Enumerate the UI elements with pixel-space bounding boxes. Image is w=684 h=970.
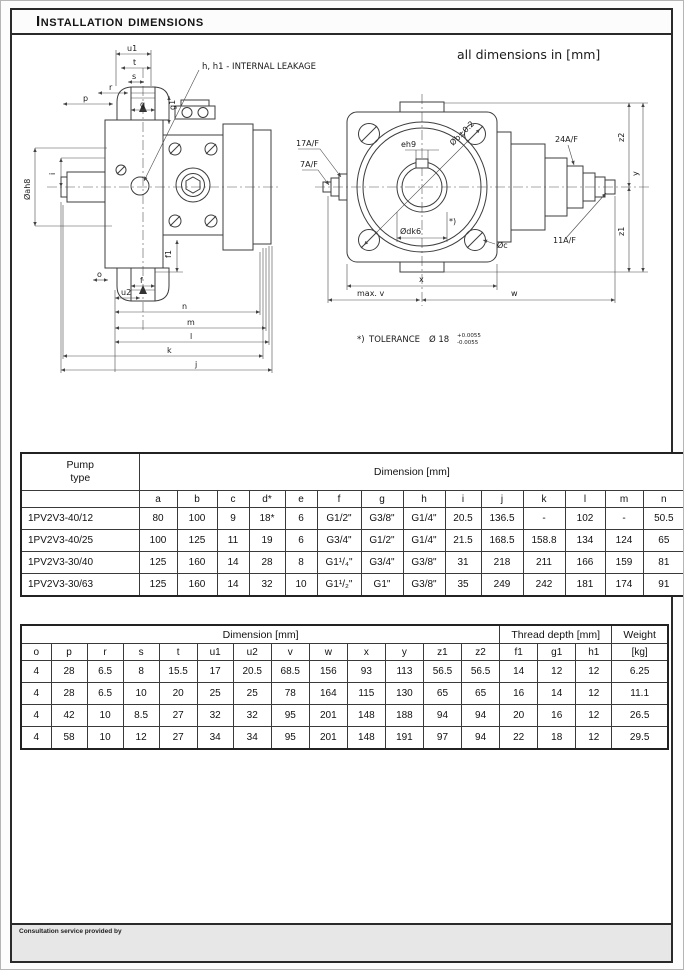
- table-cell: 102: [565, 508, 605, 530]
- table-cell: G3/8": [403, 574, 445, 597]
- column-header: i: [445, 491, 481, 508]
- table-cell: -: [605, 508, 643, 530]
- pump-dimensions-table: Pump type Dimension [mm] abcd*efghijklmn…: [20, 452, 684, 597]
- table-cell: 14: [217, 574, 249, 597]
- table-cell: 6: [285, 530, 317, 552]
- table-cell: 125: [139, 574, 177, 597]
- table-cell: 11: [217, 530, 249, 552]
- group-header-dimension: Dimension [mm]: [21, 625, 500, 644]
- column-header-row: oprstu1u2vwxyz1z2f1g1h1[kg]: [21, 644, 668, 661]
- dim-label-y: y: [631, 171, 640, 176]
- dim-label-t: t: [133, 58, 136, 67]
- table-cell: 100: [139, 530, 177, 552]
- table-cell: 27: [159, 705, 197, 727]
- dim-label-m: m: [187, 318, 195, 327]
- side-view-dimensions-bottom: o f f1 u2: [61, 202, 272, 373]
- dim-label-k: k: [167, 346, 172, 355]
- column-header: n: [643, 491, 684, 508]
- table-cell: 1PV2V3-40/12: [21, 508, 139, 530]
- column-header: z1: [423, 644, 461, 661]
- front-view: Øb±0.2 eh9 Ødk6 *) Øc 17A/F: [296, 94, 649, 306]
- table-cell: 80: [139, 508, 177, 530]
- column-header: o: [21, 644, 51, 661]
- column-header-row: abcd*efghijklmn: [21, 491, 684, 508]
- table-cell: 22: [500, 727, 538, 750]
- column-header: g1: [538, 644, 576, 661]
- table-cell: 242: [523, 574, 565, 597]
- column-header: h: [403, 491, 445, 508]
- table-cell: 1PV2V3-40/25: [21, 530, 139, 552]
- table-cell: 124: [605, 530, 643, 552]
- table-cell: 100: [177, 508, 217, 530]
- table-cell: 25: [197, 683, 233, 705]
- table-cell: 9: [217, 508, 249, 530]
- table-cell: 56.5: [461, 661, 499, 683]
- table-row: 1PV2V3-30/4012516014288G1¹/₄"G3/4"G3/8"3…: [21, 552, 684, 574]
- dim-label-p: p: [83, 94, 88, 103]
- table-cell: G1/4": [403, 530, 445, 552]
- tolerance-label: TOLERANCE: [368, 335, 420, 345]
- tolerance-size: Ø 18: [429, 334, 449, 345]
- tolerance-note: *) TOLERANCE Ø 18 +0.0055 -0.0055: [357, 333, 481, 346]
- front-view-dimensions-right: z2 z1 y: [444, 103, 648, 272]
- dim-label-w: w: [511, 289, 518, 298]
- column-header: s: [123, 644, 159, 661]
- table-cell: G1": [361, 574, 403, 597]
- table-cell: 115: [347, 683, 385, 705]
- table-cell: 181: [565, 574, 605, 597]
- table-cell: 97: [423, 727, 461, 750]
- table-cell: 28: [51, 661, 87, 683]
- table-cell: 10: [123, 683, 159, 705]
- dim-label-g: g: [140, 100, 145, 109]
- tolerance-plus: +0.0055: [457, 333, 481, 339]
- dim-label-i: i: [48, 173, 57, 175]
- table-cell: G1/4": [403, 508, 445, 530]
- table-cell: 174: [605, 574, 643, 597]
- table2-body: 4286.5815.51720.568.51569311356.556.5141…: [21, 661, 668, 750]
- blank-header: [21, 491, 139, 508]
- table-row: 1PV2V3-30/63125160143210G1¹/₂"G1"G3/8"35…: [21, 574, 684, 597]
- table-cell: 201: [309, 705, 347, 727]
- table-cell: 20: [500, 705, 538, 727]
- table-cell: 125: [139, 552, 177, 574]
- section-header: Installation dimensions: [12, 10, 671, 35]
- table-cell: 21.5: [445, 530, 481, 552]
- table-cell: 191: [385, 727, 423, 750]
- table-cell: 10: [87, 727, 123, 750]
- dim-label-shaft-dia: Øah8: [22, 179, 32, 200]
- table-cell: 134: [565, 530, 605, 552]
- table-cell: 18*: [249, 508, 285, 530]
- table-cell: 166: [565, 552, 605, 574]
- page-frame: Installation dimensions: [10, 8, 673, 963]
- table-cell: 28: [51, 683, 87, 705]
- table-cell: 218: [481, 552, 523, 574]
- table-cell: 130: [385, 683, 423, 705]
- table-cell: 1PV2V3-30/63: [21, 574, 139, 597]
- dim-label-eh9: eh9: [401, 140, 416, 149]
- page-footer: Consultation service provided by: [12, 923, 671, 961]
- units-note: all dimensions in [mm]: [457, 47, 600, 62]
- column-header: l: [565, 491, 605, 508]
- table-cell: 32: [197, 705, 233, 727]
- dim-label-u2: u2: [121, 288, 131, 297]
- table-cell: G3/8": [403, 552, 445, 574]
- table-cell: 34: [197, 727, 233, 750]
- table-cell: 20: [159, 683, 197, 705]
- column-header: g: [361, 491, 403, 508]
- table-cell: 91: [643, 574, 684, 597]
- leakage-port: [131, 177, 149, 195]
- datasheet-page: Installation dimensions: [0, 0, 684, 970]
- table-cell: 14: [217, 552, 249, 574]
- table-cell: 249: [481, 574, 523, 597]
- table-cell: 12: [538, 661, 576, 683]
- tolerance-minus: -0.0055: [457, 340, 479, 346]
- page-title: Installation dimensions: [36, 13, 204, 30]
- column-header: f1: [500, 644, 538, 661]
- page-content: h, h1 - INTERNAL LEAKAGE u1 t s r: [12, 35, 671, 923]
- table-cell: 65: [461, 683, 499, 705]
- side-view: h, h1 - INTERNAL LEAKAGE u1 t s r: [22, 44, 316, 373]
- table-cell: 94: [423, 705, 461, 727]
- dim-label-l: l: [190, 332, 192, 341]
- dim-label-x: x: [419, 275, 424, 284]
- table-cell: 16: [500, 683, 538, 705]
- table-cell: 159: [605, 552, 643, 574]
- table-cell: 27: [159, 727, 197, 750]
- table-cell: 6.5: [87, 661, 123, 683]
- table-row: 4286.51020252578164115130656516141211.1: [21, 683, 668, 705]
- table-cell: 25: [233, 683, 271, 705]
- dim-label-j: j: [194, 360, 197, 369]
- column-header: b: [177, 491, 217, 508]
- table-cell: 156: [309, 661, 347, 683]
- table-cell: 8.5: [123, 705, 159, 727]
- table-cell: 6: [285, 508, 317, 530]
- table-cell: 56.5: [423, 661, 461, 683]
- table-cell: 14: [538, 683, 576, 705]
- group-header-thread-depth: Thread depth [mm]: [500, 625, 612, 644]
- group-header-dimension: Dimension [mm]: [139, 453, 684, 491]
- table-cell: -: [523, 508, 565, 530]
- column-header: c: [217, 491, 249, 508]
- table-cell: 158.8: [523, 530, 565, 552]
- table-group-header-row: Pump type Dimension [mm]: [21, 453, 684, 491]
- table-cell: 34: [233, 727, 271, 750]
- table-cell: 95: [271, 727, 309, 750]
- table-cell: 18: [538, 727, 576, 750]
- dim-label-z2: z2: [617, 133, 626, 142]
- table-cell: G3/4": [317, 530, 361, 552]
- table-row: 458101227343495201148191979422181229.5: [21, 727, 668, 750]
- dim-label-af11: 11A/F: [553, 236, 576, 245]
- table-cell: 8: [285, 552, 317, 574]
- table1-body: 1PV2V3-40/1280100918*6G1/2"G3/8"G1/4"20.…: [21, 508, 684, 597]
- table-cell: 31: [445, 552, 481, 574]
- table-cell: 17: [197, 661, 233, 683]
- table-cell: 201: [309, 727, 347, 750]
- table-cell: 188: [385, 705, 423, 727]
- table-cell: 113: [385, 661, 423, 683]
- table-cell: 14: [500, 661, 538, 683]
- dim-label-u1: u1: [127, 44, 137, 53]
- dim-label-f1: f1: [164, 250, 173, 258]
- table-group-header-row: Dimension [mm] Thread depth [mm] Weight: [21, 625, 668, 644]
- dim-label-o: o: [97, 270, 102, 279]
- tolerance-ref-mark: *): [449, 217, 456, 226]
- table-cell: 4: [21, 705, 51, 727]
- table-cell: 65: [643, 530, 684, 552]
- table-cell: 160: [177, 574, 217, 597]
- dim-label-af24: 24A/F: [555, 135, 578, 144]
- table-cell: 4: [21, 661, 51, 683]
- table-cell: 29.5: [612, 727, 668, 750]
- table-cell: 58: [51, 727, 87, 750]
- table-cell: 81: [643, 552, 684, 574]
- table-cell: G3/8": [361, 508, 403, 530]
- table-cell: 28: [249, 552, 285, 574]
- table-cell: 136.5: [481, 508, 523, 530]
- table-cell: 125: [177, 530, 217, 552]
- table-row: 4286.5815.51720.568.51569311356.556.5141…: [21, 661, 668, 683]
- table-cell: 148: [347, 727, 385, 750]
- column-header: y: [385, 644, 423, 661]
- table-cell: 10: [87, 705, 123, 727]
- column-header: p: [51, 644, 87, 661]
- table-cell: G1/2": [317, 508, 361, 530]
- table-cell: G1/2": [361, 530, 403, 552]
- table-cell: 160: [177, 552, 217, 574]
- column-header: a: [139, 491, 177, 508]
- dim-label-c: Øc: [497, 240, 508, 250]
- column-header: t: [159, 644, 197, 661]
- table-row: 1PV2V3-40/1280100918*6G1/2"G3/8"G1/4"20.…: [21, 508, 684, 530]
- dim-label-n: n: [182, 302, 187, 311]
- table-cell: 12: [123, 727, 159, 750]
- column-header: z2: [461, 644, 499, 661]
- table-cell: 8: [123, 661, 159, 683]
- table-cell: 12: [576, 705, 612, 727]
- table-cell: 211: [523, 552, 565, 574]
- table-cell: 164: [309, 683, 347, 705]
- dim-label-af17: 17A/F: [296, 139, 319, 148]
- column-header: [kg]: [612, 644, 668, 661]
- table-cell: 32: [249, 574, 285, 597]
- column-header: x: [347, 644, 385, 661]
- table-cell: 65: [423, 683, 461, 705]
- footer-text: Consultation service provided by: [19, 928, 122, 935]
- table-cell: 20.5: [445, 508, 481, 530]
- table-cell: 16: [538, 705, 576, 727]
- leakage-note: h, h1 - INTERNAL LEAKAGE: [202, 62, 316, 72]
- dim-label-shaft: Ødk6: [400, 226, 421, 236]
- table-cell: 15.5: [159, 661, 197, 683]
- column-header: u1: [197, 644, 233, 661]
- flow-arrow: [139, 285, 147, 294]
- table-row: 442108.527323295201148188949420161226.5: [21, 705, 668, 727]
- table-cell: 50.5: [643, 508, 684, 530]
- center-plug: [176, 168, 210, 202]
- dim-label-z1: z1: [617, 227, 626, 236]
- dim-label-r: r: [109, 83, 113, 92]
- table-cell: 6.5: [87, 683, 123, 705]
- dim-label-af7: 7A/F: [300, 160, 318, 169]
- dim-label-s: s: [132, 72, 136, 81]
- table-row: 1PV2V3-40/2510012511196G3/4"G1/2"G1/4"21…: [21, 530, 684, 552]
- column-header: j: [481, 491, 523, 508]
- pump-body: [61, 100, 271, 268]
- technical-drawing: h, h1 - INTERNAL LEAKAGE u1 t s r: [17, 40, 669, 442]
- side-view-dimensions-top: u1 t s r p g g1: [63, 44, 177, 124]
- table-cell: 4: [21, 683, 51, 705]
- column-header: k: [523, 491, 565, 508]
- column-header: v: [271, 644, 309, 661]
- table-cell: G1¹/₄": [317, 552, 361, 574]
- table-cell: 42: [51, 705, 87, 727]
- table-cell: 6.25: [612, 661, 668, 683]
- table-cell: 168.5: [481, 530, 523, 552]
- column-header: h1: [576, 644, 612, 661]
- table-cell: 4: [21, 727, 51, 750]
- table-cell: 93: [347, 661, 385, 683]
- dim-label-f: f: [140, 276, 143, 285]
- column-header: w: [309, 644, 347, 661]
- dim-label-g1: g1: [168, 100, 177, 110]
- tolerance-ref: *): [357, 335, 365, 345]
- column-header: m: [605, 491, 643, 508]
- table-cell: 68.5: [271, 661, 309, 683]
- table-cell: 148: [347, 705, 385, 727]
- table-cell: 95: [271, 705, 309, 727]
- group-header-weight: Weight: [612, 625, 668, 644]
- dimensions-weight-table: Dimension [mm] Thread depth [mm] Weight …: [20, 624, 669, 750]
- table-cell: 12: [576, 661, 612, 683]
- column-header: r: [87, 644, 123, 661]
- table-cell: 11.1: [612, 683, 668, 705]
- dim-label-max-v: max. v: [357, 289, 385, 298]
- column-header: e: [285, 491, 317, 508]
- table-cell: 10: [285, 574, 317, 597]
- table-cell: 78: [271, 683, 309, 705]
- table-cell: 35: [445, 574, 481, 597]
- table-cell: 19: [249, 530, 285, 552]
- key-slot: [416, 159, 428, 168]
- table-cell: 12: [576, 727, 612, 750]
- table-cell: 12: [576, 683, 612, 705]
- table-cell: 1PV2V3-30/40: [21, 552, 139, 574]
- table-cell: G3/4": [361, 552, 403, 574]
- table-cell: 26.5: [612, 705, 668, 727]
- table-cell: 20.5: [233, 661, 271, 683]
- table-cell: G1¹/₂": [317, 574, 361, 597]
- column-header: f: [317, 491, 361, 508]
- corner-header: Pump type: [21, 453, 139, 491]
- column-header: d*: [249, 491, 285, 508]
- table-cell: 32: [233, 705, 271, 727]
- table-cell: 94: [461, 705, 499, 727]
- column-header: u2: [233, 644, 271, 661]
- table-cell: 94: [461, 727, 499, 750]
